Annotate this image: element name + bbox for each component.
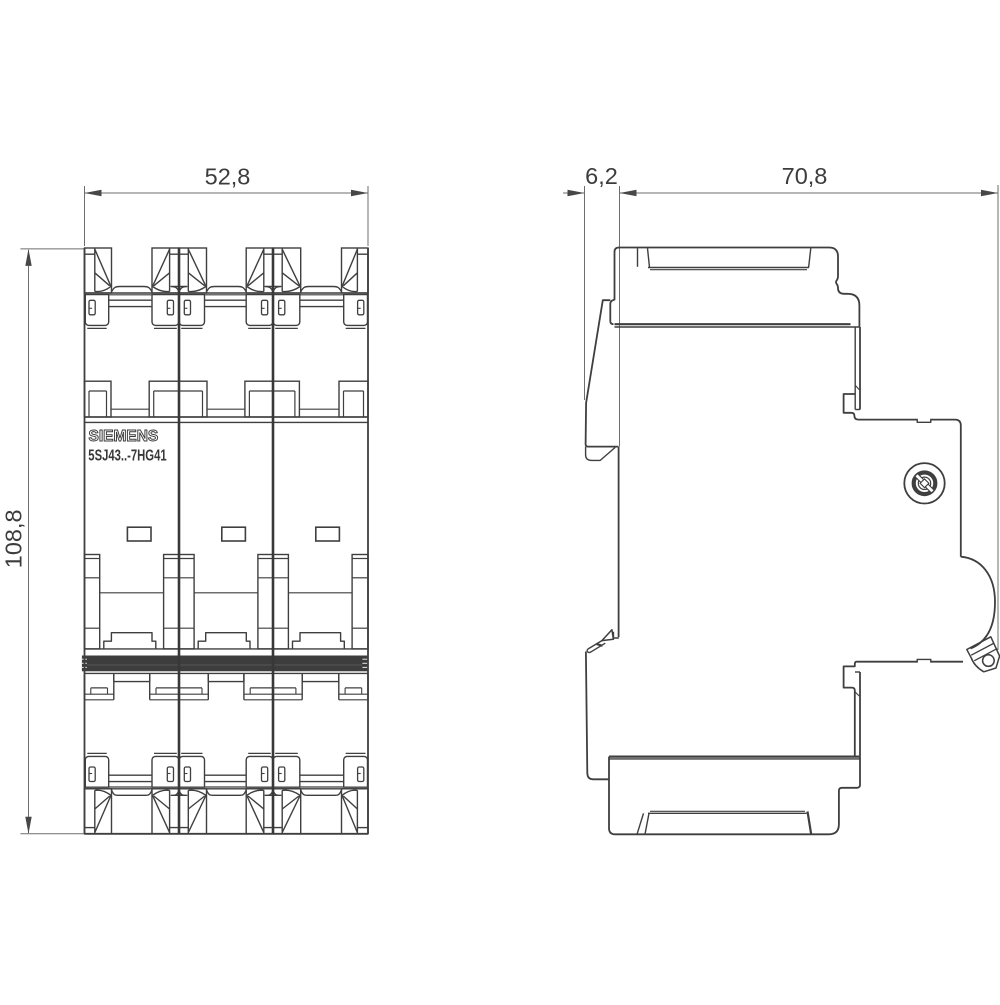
svg-text:52,8: 52,8 xyxy=(205,164,251,190)
svg-text:5SJ43..-7HG41: 5SJ43..-7HG41 xyxy=(88,445,167,463)
svg-text:SIEMENS: SIEMENS xyxy=(89,428,159,445)
svg-text:6,2: 6,2 xyxy=(585,163,618,189)
svg-text:108,8: 108,8 xyxy=(1,509,27,568)
svg-text:70,8: 70,8 xyxy=(782,163,828,189)
